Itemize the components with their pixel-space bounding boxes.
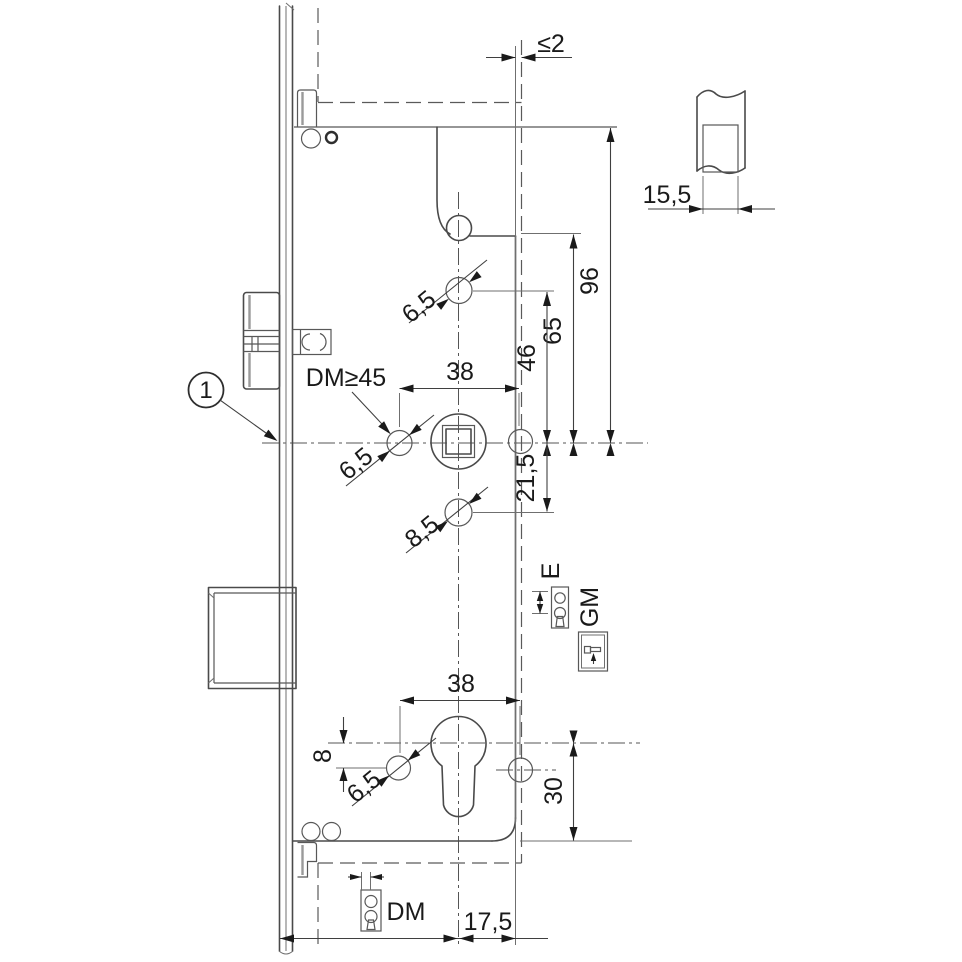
lock-technical-drawing-page: ≤2 96 65 46 21,5 38 — [0, 0, 962, 962]
dm-min-label: DM≥45 — [306, 364, 386, 392]
hole-top-label: 6,5 — [397, 285, 442, 329]
balloon-1: 1 — [189, 373, 278, 442]
dim-label-21-5: 21,5 — [512, 454, 540, 503]
handle-icon — [585, 647, 591, 654]
faceplate — [279, 3, 294, 954]
dim-label-38-bottom: 38 — [447, 670, 475, 698]
lock-case — [293, 46, 617, 945]
legend-gm: GM — [576, 587, 608, 671]
callout-hole-top-6-5: 6,5 — [397, 260, 487, 329]
dim-21-5: 21,5 — [473, 443, 554, 513]
screw-holes-top — [302, 129, 338, 148]
screw-hole — [302, 823, 320, 841]
detail-view-strike-plate: 15,5 — [643, 90, 775, 214]
screw-holes-bottom — [302, 823, 341, 841]
dim-gap-top: ≤2 — [486, 30, 572, 62]
deadbolt — [209, 588, 297, 689]
dim-label-96: 96 — [576, 267, 604, 295]
hole-right-mid — [509, 430, 533, 454]
auxiliary-latch — [293, 330, 332, 355]
callout-hole-bottom-6-5: 6,5 — [342, 738, 436, 809]
gm-label: GM — [576, 587, 604, 627]
detail-pocket — [703, 125, 738, 172]
dim-label-38-top: 38 — [446, 358, 474, 386]
hole-bottom-label: 6,5 — [342, 765, 387, 809]
hole-85-label: 8,5 — [400, 510, 445, 554]
case-notch — [437, 127, 450, 234]
dim-96: 96 — [576, 128, 615, 456]
legend-dm: DM — [348, 872, 425, 931]
hole-mid-label: 6,5 — [334, 442, 379, 486]
break-mark-bottom — [279, 951, 293, 954]
dim-label-15-5: 15,5 — [643, 181, 692, 209]
dim-30: 30 — [520, 731, 632, 842]
screw-hole-small — [326, 132, 337, 143]
balloon-number: 1 — [199, 377, 212, 404]
callout-hole-8-5: 8,5 — [400, 487, 488, 554]
latch-bolt — [244, 293, 280, 390]
dim-label-gap: ≤2 — [537, 30, 565, 58]
legend-e: E — [532, 563, 569, 628]
e-label: E — [537, 563, 565, 580]
dim-label-8: 8 — [309, 749, 337, 763]
dim-label-65: 65 — [539, 317, 567, 345]
dim-label-30: 30 — [540, 777, 568, 805]
keyhole-icon — [365, 911, 377, 923]
case-corner — [492, 818, 516, 841]
bottom-guide-tab — [298, 843, 317, 878]
dim-label-46: 46 — [513, 344, 541, 372]
technical-drawing: ≤2 96 65 46 21,5 38 — [0, 0, 962, 962]
screw-hole — [323, 823, 341, 841]
dim-38-top: 38 — [400, 358, 520, 427]
dm-label: DM — [387, 898, 426, 926]
dim-label-17-5: 17,5 — [464, 908, 513, 936]
dim-38-bottom: 38 — [400, 670, 520, 755]
callout-dm-min-45: DM≥45 — [306, 364, 391, 434]
screw-hole — [302, 129, 321, 148]
top-guide-tab — [298, 90, 317, 127]
